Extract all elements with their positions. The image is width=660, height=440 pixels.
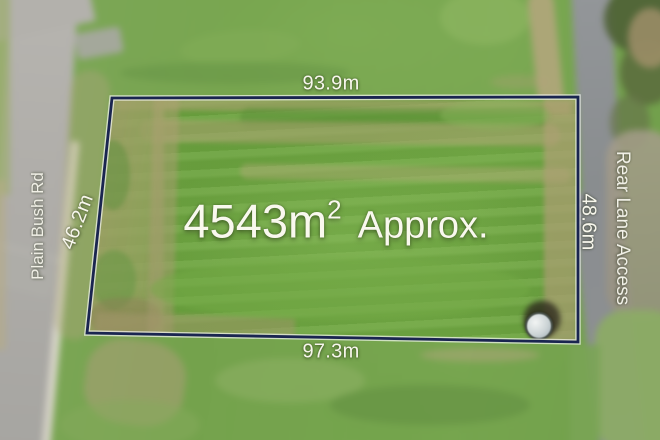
dimension-label-top: 93.9m xyxy=(302,73,359,96)
area-approx-text: Approx. xyxy=(358,205,489,247)
dimension-label-right: 48.6m xyxy=(577,193,600,250)
area-label: 4543m2Approx. xyxy=(183,194,488,249)
road-name-rear-lane-access: Rear Lane Access xyxy=(611,151,633,305)
area-value: 4543m xyxy=(183,195,327,248)
dimension-label-bottom: 97.3m xyxy=(302,341,359,364)
area-superscript: 2 xyxy=(327,195,341,225)
aerial-land-listing-photo: 93.9m 97.3m 46.2m 48.6m Plain Bush Rd Re… xyxy=(0,0,660,440)
road-name-plain-bush-rd: Plain Bush Rd xyxy=(28,172,48,280)
